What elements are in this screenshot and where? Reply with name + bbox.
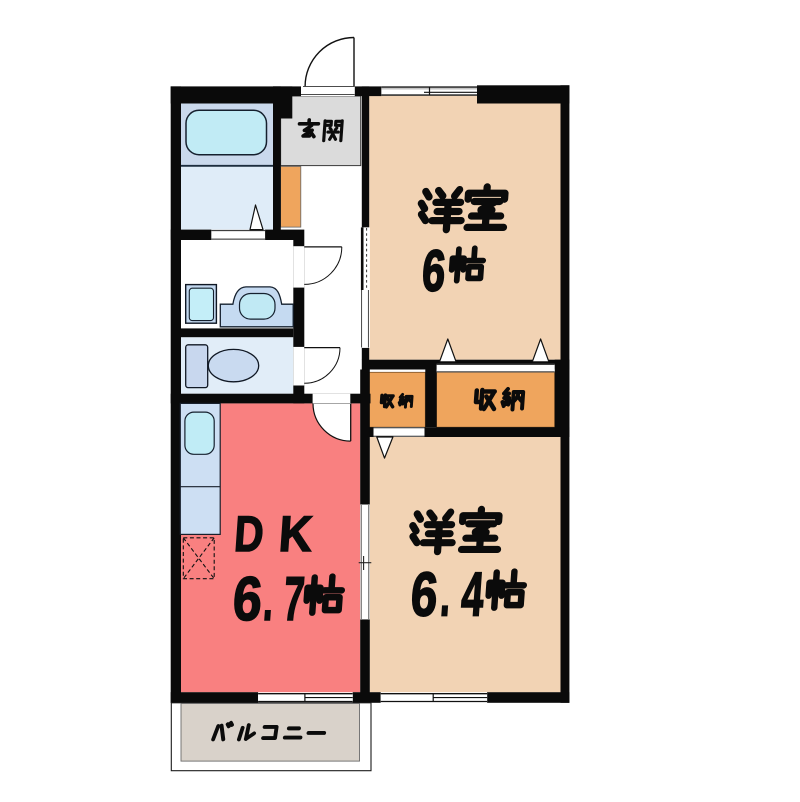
svg-text:6: 6 — [409, 561, 440, 630]
svg-text:D: D — [233, 506, 266, 562]
svg-text:K: K — [277, 506, 314, 562]
svg-text:6: 6 — [231, 565, 265, 634]
svg-text:6: 6 — [420, 239, 448, 304]
